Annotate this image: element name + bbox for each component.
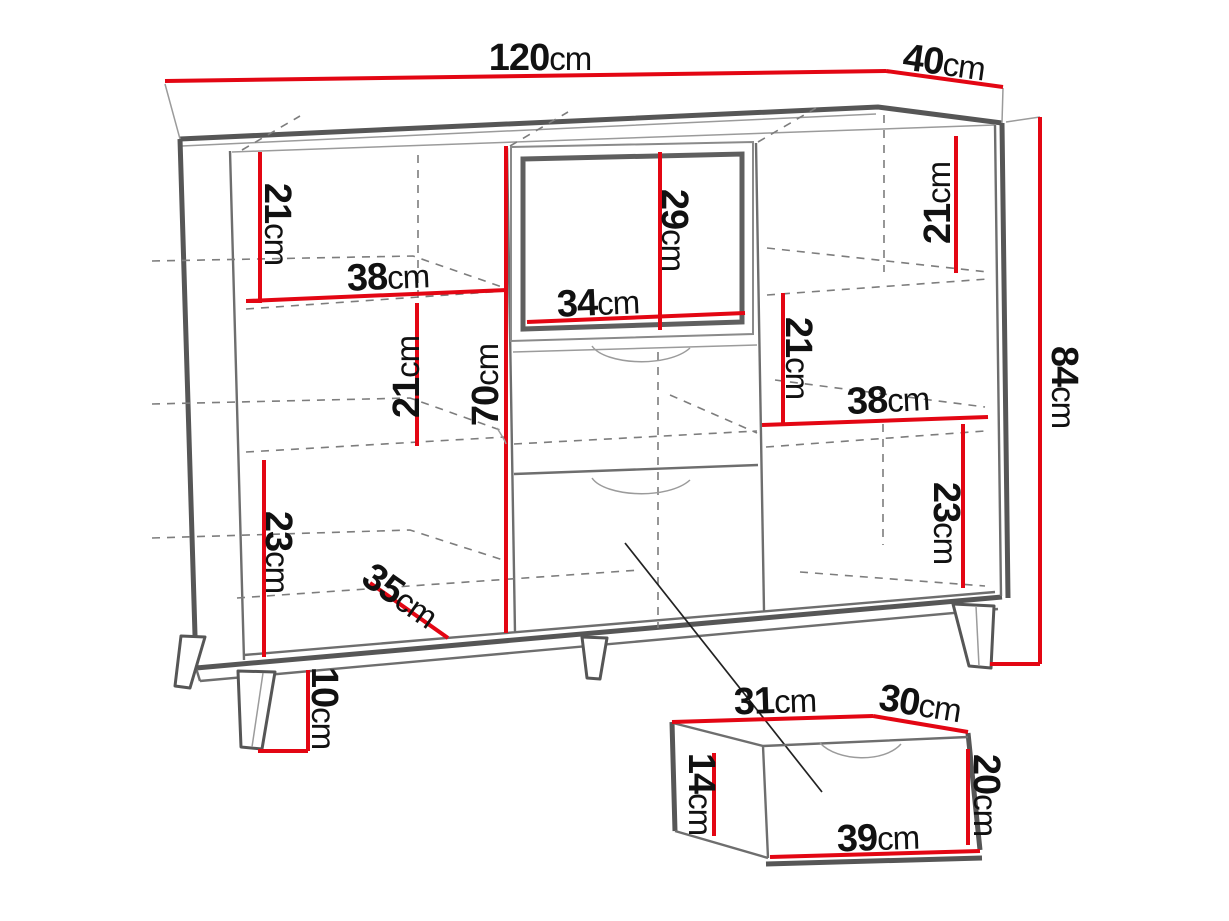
label-leg-10: 10cm xyxy=(303,667,345,749)
label-drawer-39: 39cm xyxy=(836,816,920,861)
label-right-23: 23cm xyxy=(925,482,967,564)
label-width-120: 120cm xyxy=(489,37,591,79)
drawer-divider xyxy=(514,465,758,474)
label-left-mid-21: 21cm xyxy=(386,336,428,418)
label-height-84: 84cm xyxy=(1043,346,1085,428)
label-left-23: 23cm xyxy=(257,511,299,593)
drawer-leader-line xyxy=(625,543,822,792)
dimension-diagram: 120cm 40cm 84cm 21cm 38cm 21cm 70cm 23cm… xyxy=(0,0,1229,921)
label-right-mid-21: 21cm xyxy=(777,317,819,399)
label-depth-40: 40cm xyxy=(900,36,987,89)
height-84-extension xyxy=(1006,117,1040,122)
label-drawer-31: 31cm xyxy=(733,679,817,724)
label-drawer-20: 20cm xyxy=(965,754,1007,836)
label-right-38: 38cm xyxy=(846,377,930,423)
label-niche-34: 34cm xyxy=(556,280,640,326)
label-niche-29: 29cm xyxy=(653,189,695,271)
label-drawer-14: 14cm xyxy=(680,753,722,835)
drawer-box-handle-scoop xyxy=(820,743,901,758)
label-right-top-21: 21cm xyxy=(917,162,959,244)
front-right-leg xyxy=(953,604,994,668)
middle-leg xyxy=(582,637,607,679)
label-left-top-21: 21cm xyxy=(256,183,298,265)
front-left-leg xyxy=(238,671,275,749)
cabinet-top-panel xyxy=(165,84,1003,152)
diagram-canvas: 120cm 40cm 84cm 21cm 38cm 21cm 70cm 23cm… xyxy=(0,0,1229,921)
top-front-edge xyxy=(180,107,1002,139)
niche-bottom-edge xyxy=(513,345,757,352)
label-left-38: 38cm xyxy=(346,254,430,300)
label-interior-70: 70cm xyxy=(465,344,507,426)
drawers-front xyxy=(514,346,758,494)
